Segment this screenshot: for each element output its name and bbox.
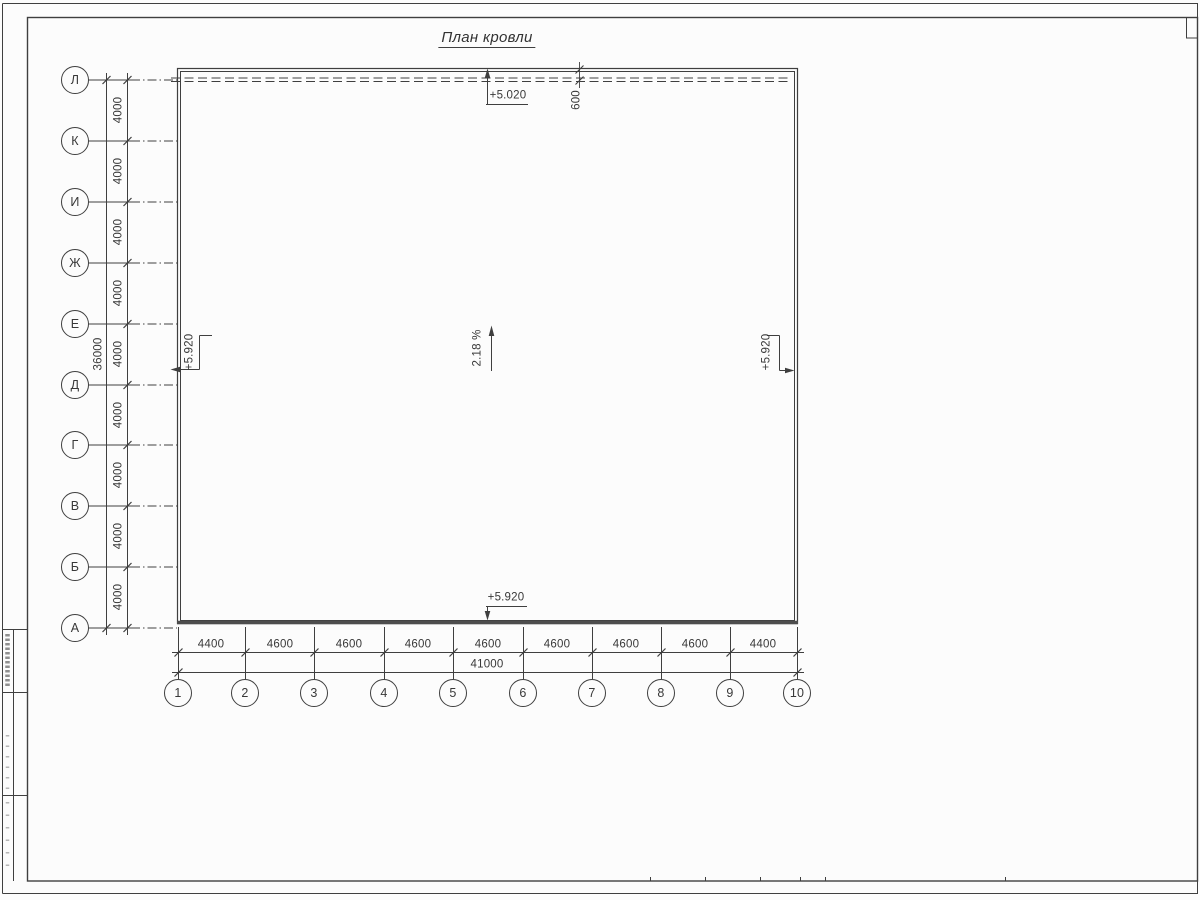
row-axis-label: Л (71, 74, 79, 87)
elevation-right-label: +5.920 (761, 334, 773, 371)
elevation-leader-bottom (485, 607, 527, 621)
col-dim: 4600 (267, 639, 293, 651)
col-dim: 4600 (613, 639, 639, 651)
row-axis-label: Б (71, 561, 79, 574)
drawing-frame (28, 18, 1198, 882)
drawing-sheet: План кровли Л К И Ж Е Д Г В Б А 4000 400… (0, 0, 1200, 900)
col-dim: 4600 (682, 639, 708, 651)
col-axis-label: 3 (310, 687, 317, 700)
row-total-dim: 36000 (93, 338, 105, 371)
building-outline (177, 69, 798, 624)
col-axis-label: 10 (790, 687, 804, 700)
overhang-dim-label: 600 (571, 90, 583, 110)
col-dim: 4600 (336, 639, 362, 651)
row-dim: 4000 (113, 523, 125, 549)
col-axis-label: 5 (449, 687, 456, 700)
row-axis-label: И (70, 196, 79, 209)
col-dim: 4600 (544, 639, 570, 651)
row-axis-label: Д (71, 379, 80, 392)
col-axis-label: 8 (657, 687, 664, 700)
col-total-dim: 41000 (471, 659, 504, 671)
col-axis-label: 6 (519, 687, 526, 700)
row-dim: 4000 (113, 97, 125, 123)
col-axis-label: 4 (380, 687, 387, 700)
col-axis-label: 1 (174, 687, 181, 700)
row-axis-label: В (71, 500, 80, 513)
row-axis-label: Е (71, 318, 80, 331)
row-dim: 4000 (113, 402, 125, 428)
row-axis-label: К (71, 135, 78, 148)
col-axis-label: 9 (726, 687, 733, 700)
slope-label: 2.18 % (472, 329, 484, 366)
elevation-bottom-label: +5.920 (488, 592, 525, 604)
col-dim: 4400 (198, 639, 224, 651)
sheet-outer-border (3, 4, 1199, 894)
overhang-dim-ticks (576, 62, 584, 88)
row-dim: 4000 (113, 219, 125, 245)
row-axis-label: А (71, 622, 80, 635)
col-axis-bubbles (165, 680, 811, 707)
slope-arrow (489, 326, 495, 372)
col-dim: 4600 (405, 639, 431, 651)
col-axis-label: 7 (588, 687, 595, 700)
row-dim: 4000 (113, 341, 125, 367)
drawing-title: План кровли (438, 30, 535, 48)
elevation-left-label: +5.920 (184, 334, 196, 371)
row-axis-label: Г (72, 439, 79, 452)
row-axis-bubbles (62, 67, 89, 642)
row-axis-label: Ж (69, 257, 81, 270)
elevation-top-label: +5.020 (490, 90, 527, 102)
row-dim: 4000 (113, 462, 125, 488)
roof-overhang-dashed-line (171, 78, 790, 82)
row-dim: 4000 (113, 584, 125, 610)
row-dim: 4000 (113, 280, 125, 306)
row-dim: 4000 (113, 158, 125, 184)
left-stamp-strip (3, 630, 28, 882)
col-dim: 4400 (750, 639, 776, 651)
col-dim: 4600 (475, 639, 501, 651)
col-axis-label: 2 (241, 687, 248, 700)
drawing-linework (0, 0, 1200, 900)
